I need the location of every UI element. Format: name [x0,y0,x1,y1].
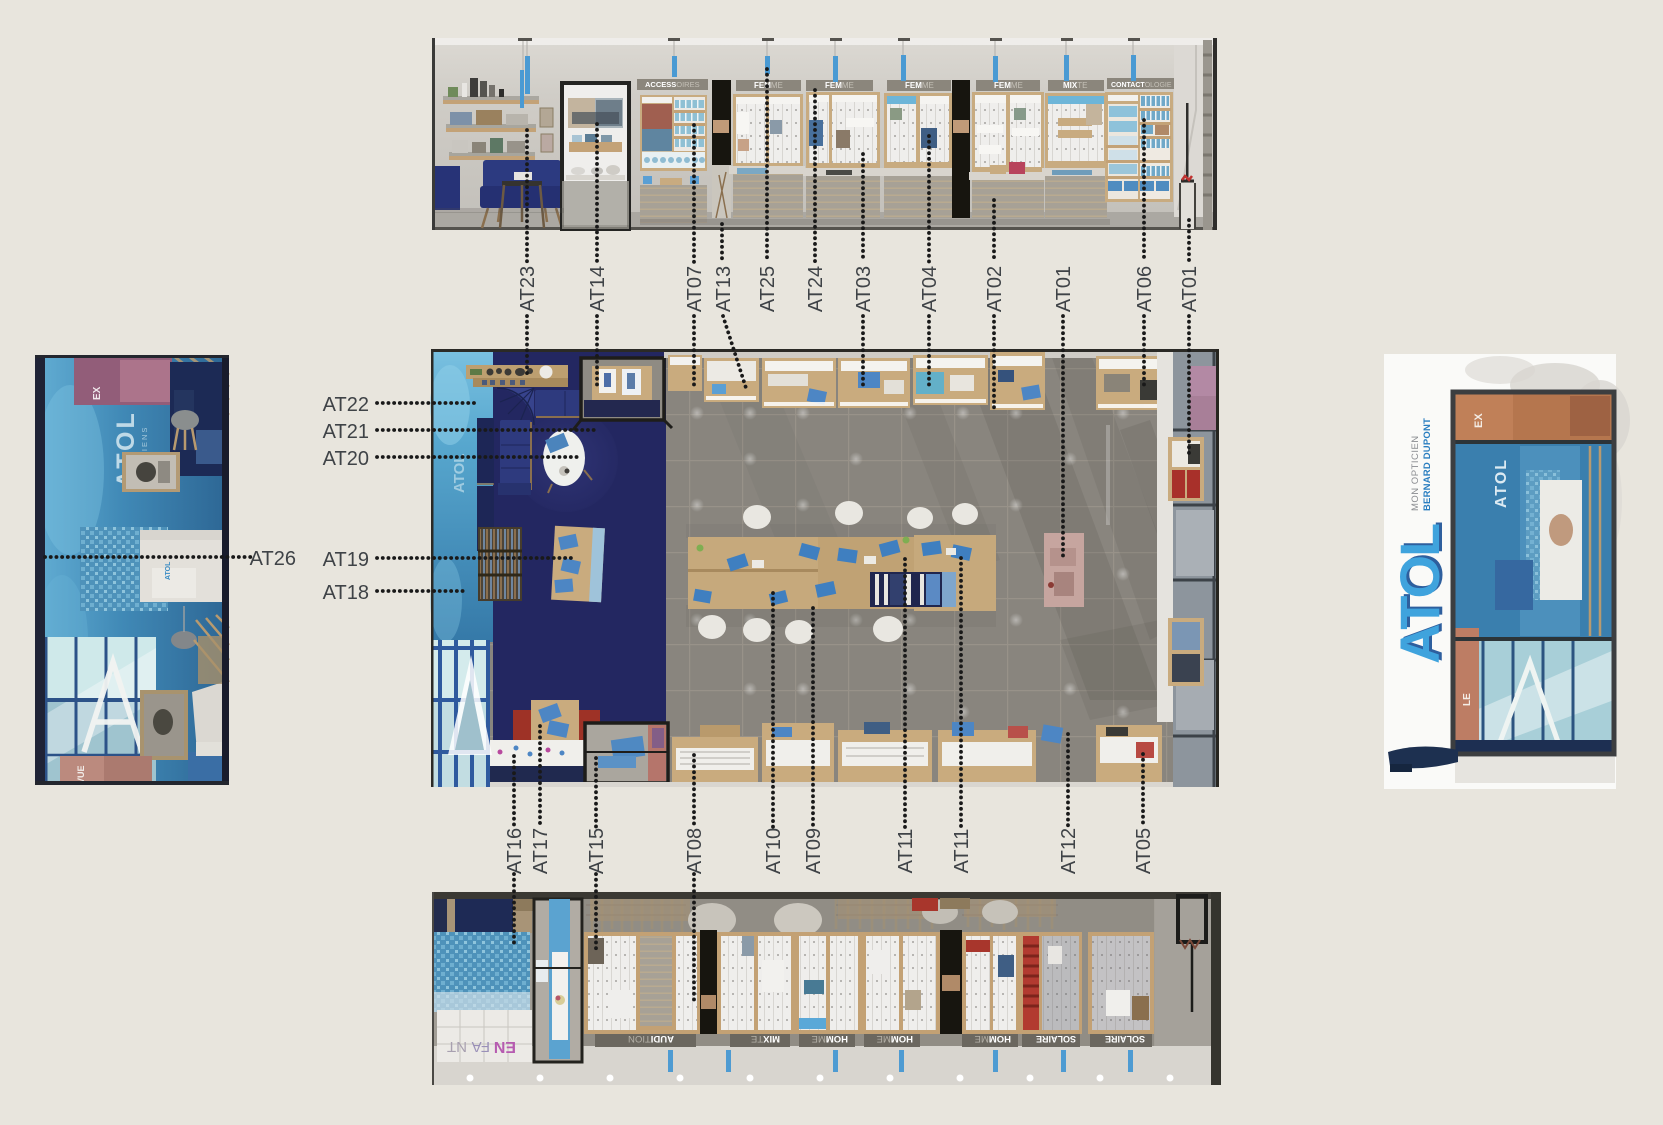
svg-text:LE: LE [1462,693,1473,706]
svg-text:FEMME: FEMME [825,81,854,90]
svg-text:SOLAIRE: SOLAIRE [1105,1034,1145,1044]
svg-text:AT05: AT05 [1133,828,1155,874]
svg-text:MON OPTICIEN: MON OPTICIEN [1410,435,1421,511]
svg-text:EN: EN [494,1038,516,1055]
svg-text:AT20: AT20 [323,448,369,470]
svg-text:HOMME: HOMME [877,1033,913,1044]
svg-text:AT19: AT19 [323,549,369,571]
svg-text:AT11: AT11 [951,829,973,874]
svg-text:AUDITION: AUDITION [628,1033,674,1044]
svg-text:FA: FA [472,1038,490,1055]
svg-text:AT25: AT25 [757,266,779,312]
svg-text:AT03: AT03 [853,266,875,312]
svg-text:HOMME: HOMME [812,1033,848,1044]
svg-text:AT01: AT01 [1053,266,1075,312]
svg-text:AT18: AT18 [323,582,369,604]
svg-text:AT14: AT14 [587,266,609,312]
svg-text:AT17: AT17 [530,828,552,874]
svg-text:BERNARD DUPONT: BERNARD DUPONT [1422,418,1433,511]
svg-text:ATOL: ATOL [451,454,468,493]
svg-text:AT15: AT15 [586,828,608,874]
svg-text:ATOL: ATOL [1388,524,1451,664]
svg-text:EX: EX [1473,413,1485,428]
svg-text:AT09: AT09 [803,828,825,874]
svg-text:AT23: AT23 [517,266,539,312]
svg-text:AT08: AT08 [684,828,706,874]
svg-text:AT04: AT04 [919,266,941,312]
svg-text:AT02: AT02 [984,266,1006,312]
svg-text:AT16: AT16 [504,828,526,874]
svg-text:AT21: AT21 [323,421,369,443]
svg-text:AT12: AT12 [1058,828,1080,874]
svg-text:AT10: AT10 [763,828,785,874]
svg-text:ATOL: ATOL [165,561,172,580]
svg-text:FEMME: FEMME [994,81,1023,90]
svg-text:FEMME: FEMME [905,81,934,90]
svg-text:AT01: AT01 [1179,266,1201,312]
svg-text:AT22: AT22 [323,394,369,416]
svg-text:AT26: AT26 [250,548,296,570]
svg-text:ACCESSOIRES: ACCESSOIRES [645,80,700,89]
svg-text:MIXTE: MIXTE [1063,81,1087,90]
svg-text:CONTACTOLOGIE: CONTACTOLOGIE [1111,82,1172,89]
svg-text:ATOL: ATOL [1493,458,1510,508]
svg-text:AT13: AT13 [713,266,735,312]
svg-text:AT11: AT11 [895,829,917,874]
svg-text:SOLAIRE: SOLAIRE [1036,1034,1076,1044]
svg-text:EX: EX [92,386,103,400]
svg-text:AT24: AT24 [805,266,827,312]
svg-text:AT07: AT07 [684,266,706,312]
svg-text:HOMME: HOMME [975,1033,1011,1044]
svg-text:AT06: AT06 [1134,266,1156,312]
svg-text:NT: NT [447,1038,467,1055]
svg-text:MIXTE: MIXTE [751,1033,780,1044]
